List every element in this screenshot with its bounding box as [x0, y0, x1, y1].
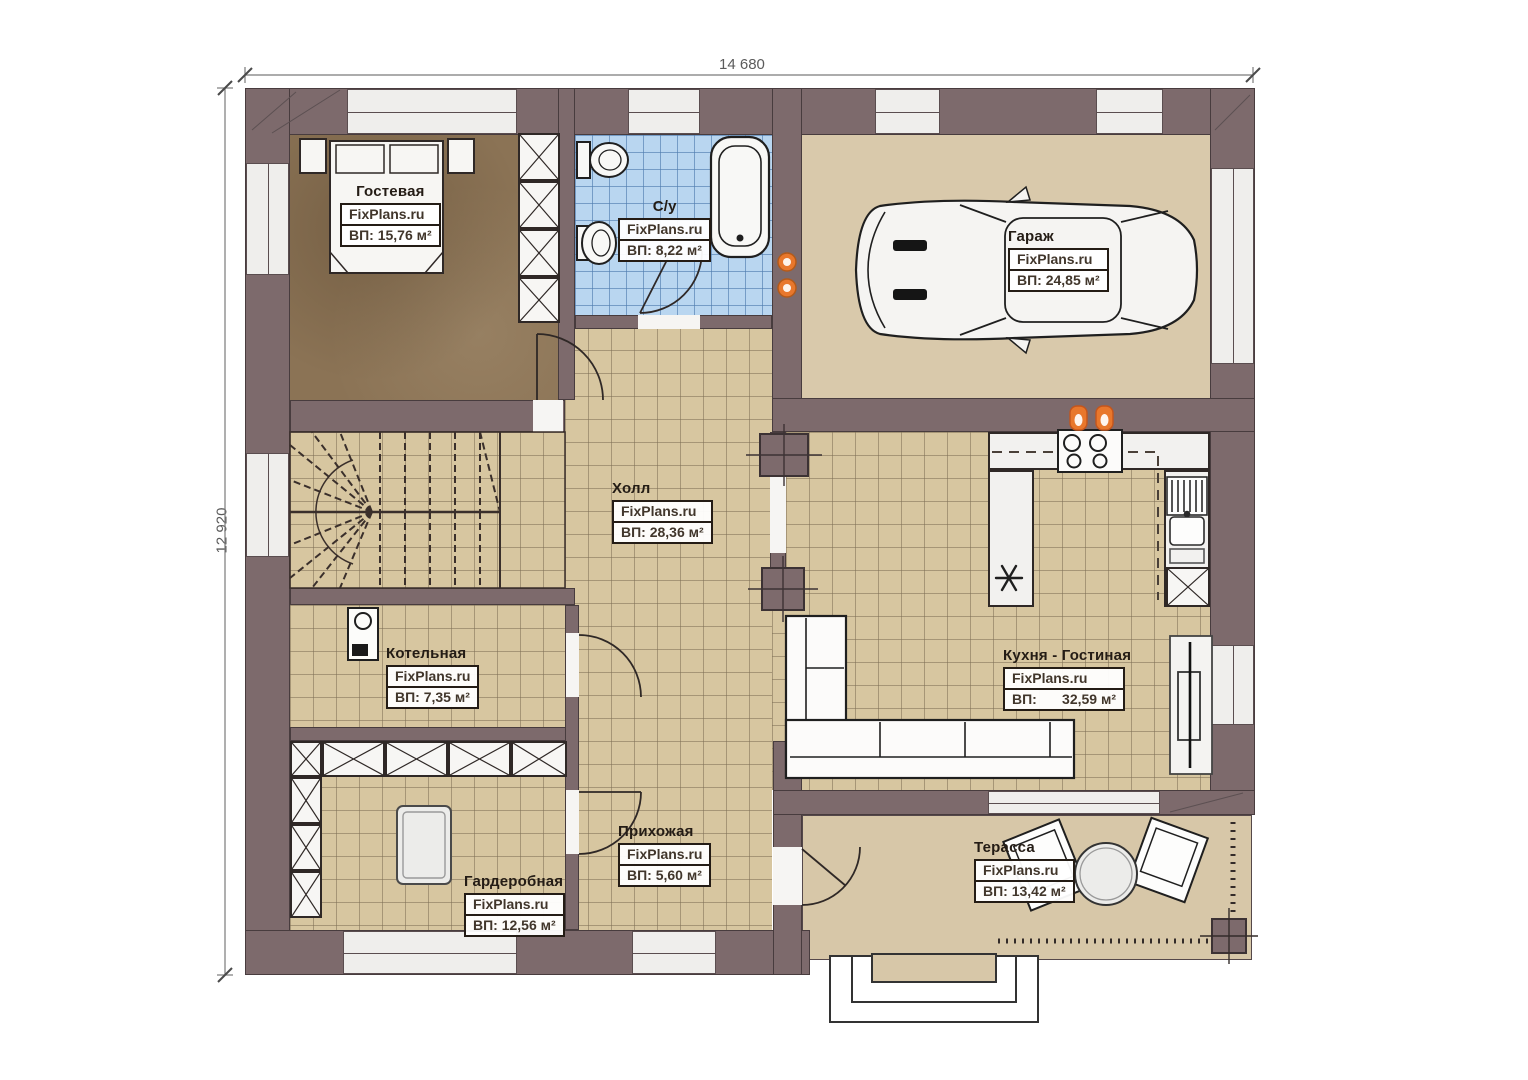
closet [290, 824, 322, 871]
area-value: 32,59 м² [1062, 691, 1116, 707]
room-label-bathroom: С/у FixPlans.ru ВП: 8,22 м² [618, 198, 711, 262]
dimension-height-label: 12 920 [213, 504, 230, 558]
wall-garage-bottom [772, 398, 1255, 432]
wall-boiler-bottom [290, 727, 575, 741]
room-area: ВП: 8,22 м² [620, 239, 709, 260]
room-info-box: FixPlans.ru ВП: 24,85 м² [1008, 248, 1109, 292]
closet [290, 777, 322, 824]
room-area: ВП: 24,85 м² [1010, 269, 1107, 290]
room-label-garage: Гараж FixPlans.ru ВП: 24,85 м² [1008, 228, 1109, 292]
porch-steps [830, 954, 1038, 1022]
window [1096, 89, 1163, 134]
watermark: FixPlans.ru [620, 220, 709, 239]
closet [322, 741, 385, 777]
dimension-width-label: 14 680 [715, 56, 769, 73]
room-area: ВП: 15,76 м² [342, 224, 439, 245]
watermark: FixPlans.ru [466, 895, 563, 914]
wall-stairs-bottom [290, 588, 575, 605]
room-label-wardrobe: Гардеробная FixPlans.ru ВП: 12,56 м² [464, 873, 565, 937]
room-info-box: FixPlans.ru ВП: 15,76 м² [340, 203, 441, 247]
watermark: FixPlans.ru [976, 861, 1073, 880]
window [1211, 168, 1254, 364]
watermark: FixPlans.ru [388, 667, 477, 686]
area-label: ВП: [1012, 691, 1037, 707]
window [1211, 645, 1254, 725]
room-info-box: FixPlans.ru ВП: 8,22 м² [618, 218, 711, 262]
closet [385, 741, 448, 777]
passage-hall-kitchen [770, 453, 786, 553]
room-area: ВП: 28,36 м² [614, 521, 711, 542]
room-area: ВП: 7,35 м² [388, 686, 477, 707]
floor-garage [802, 135, 1210, 398]
watermark: FixPlans.ru [620, 845, 709, 864]
room-name: Холл [612, 480, 713, 497]
room-name: Котельная [386, 645, 479, 662]
watermark: FixPlans.ru [614, 502, 711, 521]
wall-guest-bath [558, 88, 575, 400]
room-area: ВП: 32,59 м² [1005, 688, 1123, 709]
room-info-box: FixPlans.ru ВП: 12,56 м² [464, 893, 565, 937]
room-name: Кухня - Гостиная [1003, 647, 1131, 664]
floor-stairs [290, 432, 565, 588]
window [343, 931, 517, 974]
room-info-box: FixPlans.ru ВП: 13,42 м² [974, 859, 1075, 903]
door-opening-boiler [566, 633, 579, 697]
watermark: FixPlans.ru [1005, 669, 1123, 688]
front-door [632, 931, 716, 974]
kitchen-counter-top [988, 432, 1210, 470]
window [246, 453, 289, 557]
closet [448, 741, 511, 777]
watermark: FixPlans.ru [1010, 250, 1107, 269]
room-area: ВП: 13,42 м² [976, 880, 1073, 901]
room-info-box: FixPlans.ru ВП: 5,60 м² [618, 843, 711, 887]
room-label-kitchen: Кухня - Гостиная FixPlans.ru ВП: 32,59 м… [1003, 647, 1131, 711]
closet [290, 871, 322, 918]
room-name: Гараж [1008, 228, 1109, 245]
wall-bath-garage [772, 88, 802, 432]
window [988, 791, 1160, 814]
room-info-box: FixPlans.ru ВП: 32,59 м² [1003, 667, 1125, 711]
door-opening-guest [533, 400, 563, 432]
room-name: Терасса [974, 839, 1075, 856]
floor-plan: 14 680 12 920 Гостевая FixPlans.ru ВП: 1… [0, 0, 1528, 1080]
room-info-box: FixPlans.ru ВП: 7,35 м² [386, 665, 479, 709]
wall-guest-bottom [290, 400, 565, 432]
room-name: Прихожая [618, 823, 711, 840]
window [246, 163, 289, 275]
door-opening-wardrobe [566, 790, 579, 854]
room-area: ВП: 5,60 м² [620, 864, 709, 885]
room-label-terrace: Терасса FixPlans.ru ВП: 13,42 м² [974, 839, 1075, 903]
room-area: ВП: 12,56 м² [466, 914, 563, 935]
window [875, 89, 940, 134]
kitchen-counter-left [988, 470, 1034, 607]
door-opening-bathroom [638, 315, 700, 329]
room-name: С/у [618, 198, 711, 215]
room-label-boiler: Котельная FixPlans.ru ВП: 7,35 м² [386, 645, 479, 709]
watermark: FixPlans.ru [342, 205, 439, 224]
closet [518, 181, 560, 229]
room-label-hall: Холл FixPlans.ru ВП: 28,36 м² [612, 480, 713, 544]
closet [511, 741, 567, 777]
closet [518, 229, 560, 277]
room-label-entry: Прихожая FixPlans.ru ВП: 5,60 м² [618, 823, 711, 887]
room-name: Гардеробная [464, 873, 565, 890]
room-name: Гостевая [340, 183, 441, 200]
window [347, 89, 517, 134]
fridge [1166, 567, 1210, 607]
closet [518, 277, 560, 323]
closet [290, 741, 322, 777]
closet [518, 133, 560, 181]
window [628, 89, 700, 134]
door-opening-terrace [773, 847, 802, 905]
room-info-box: FixPlans.ru ВП: 28,36 м² [612, 500, 713, 544]
room-label-guest: Гостевая FixPlans.ru ВП: 15,76 м² [340, 183, 441, 247]
